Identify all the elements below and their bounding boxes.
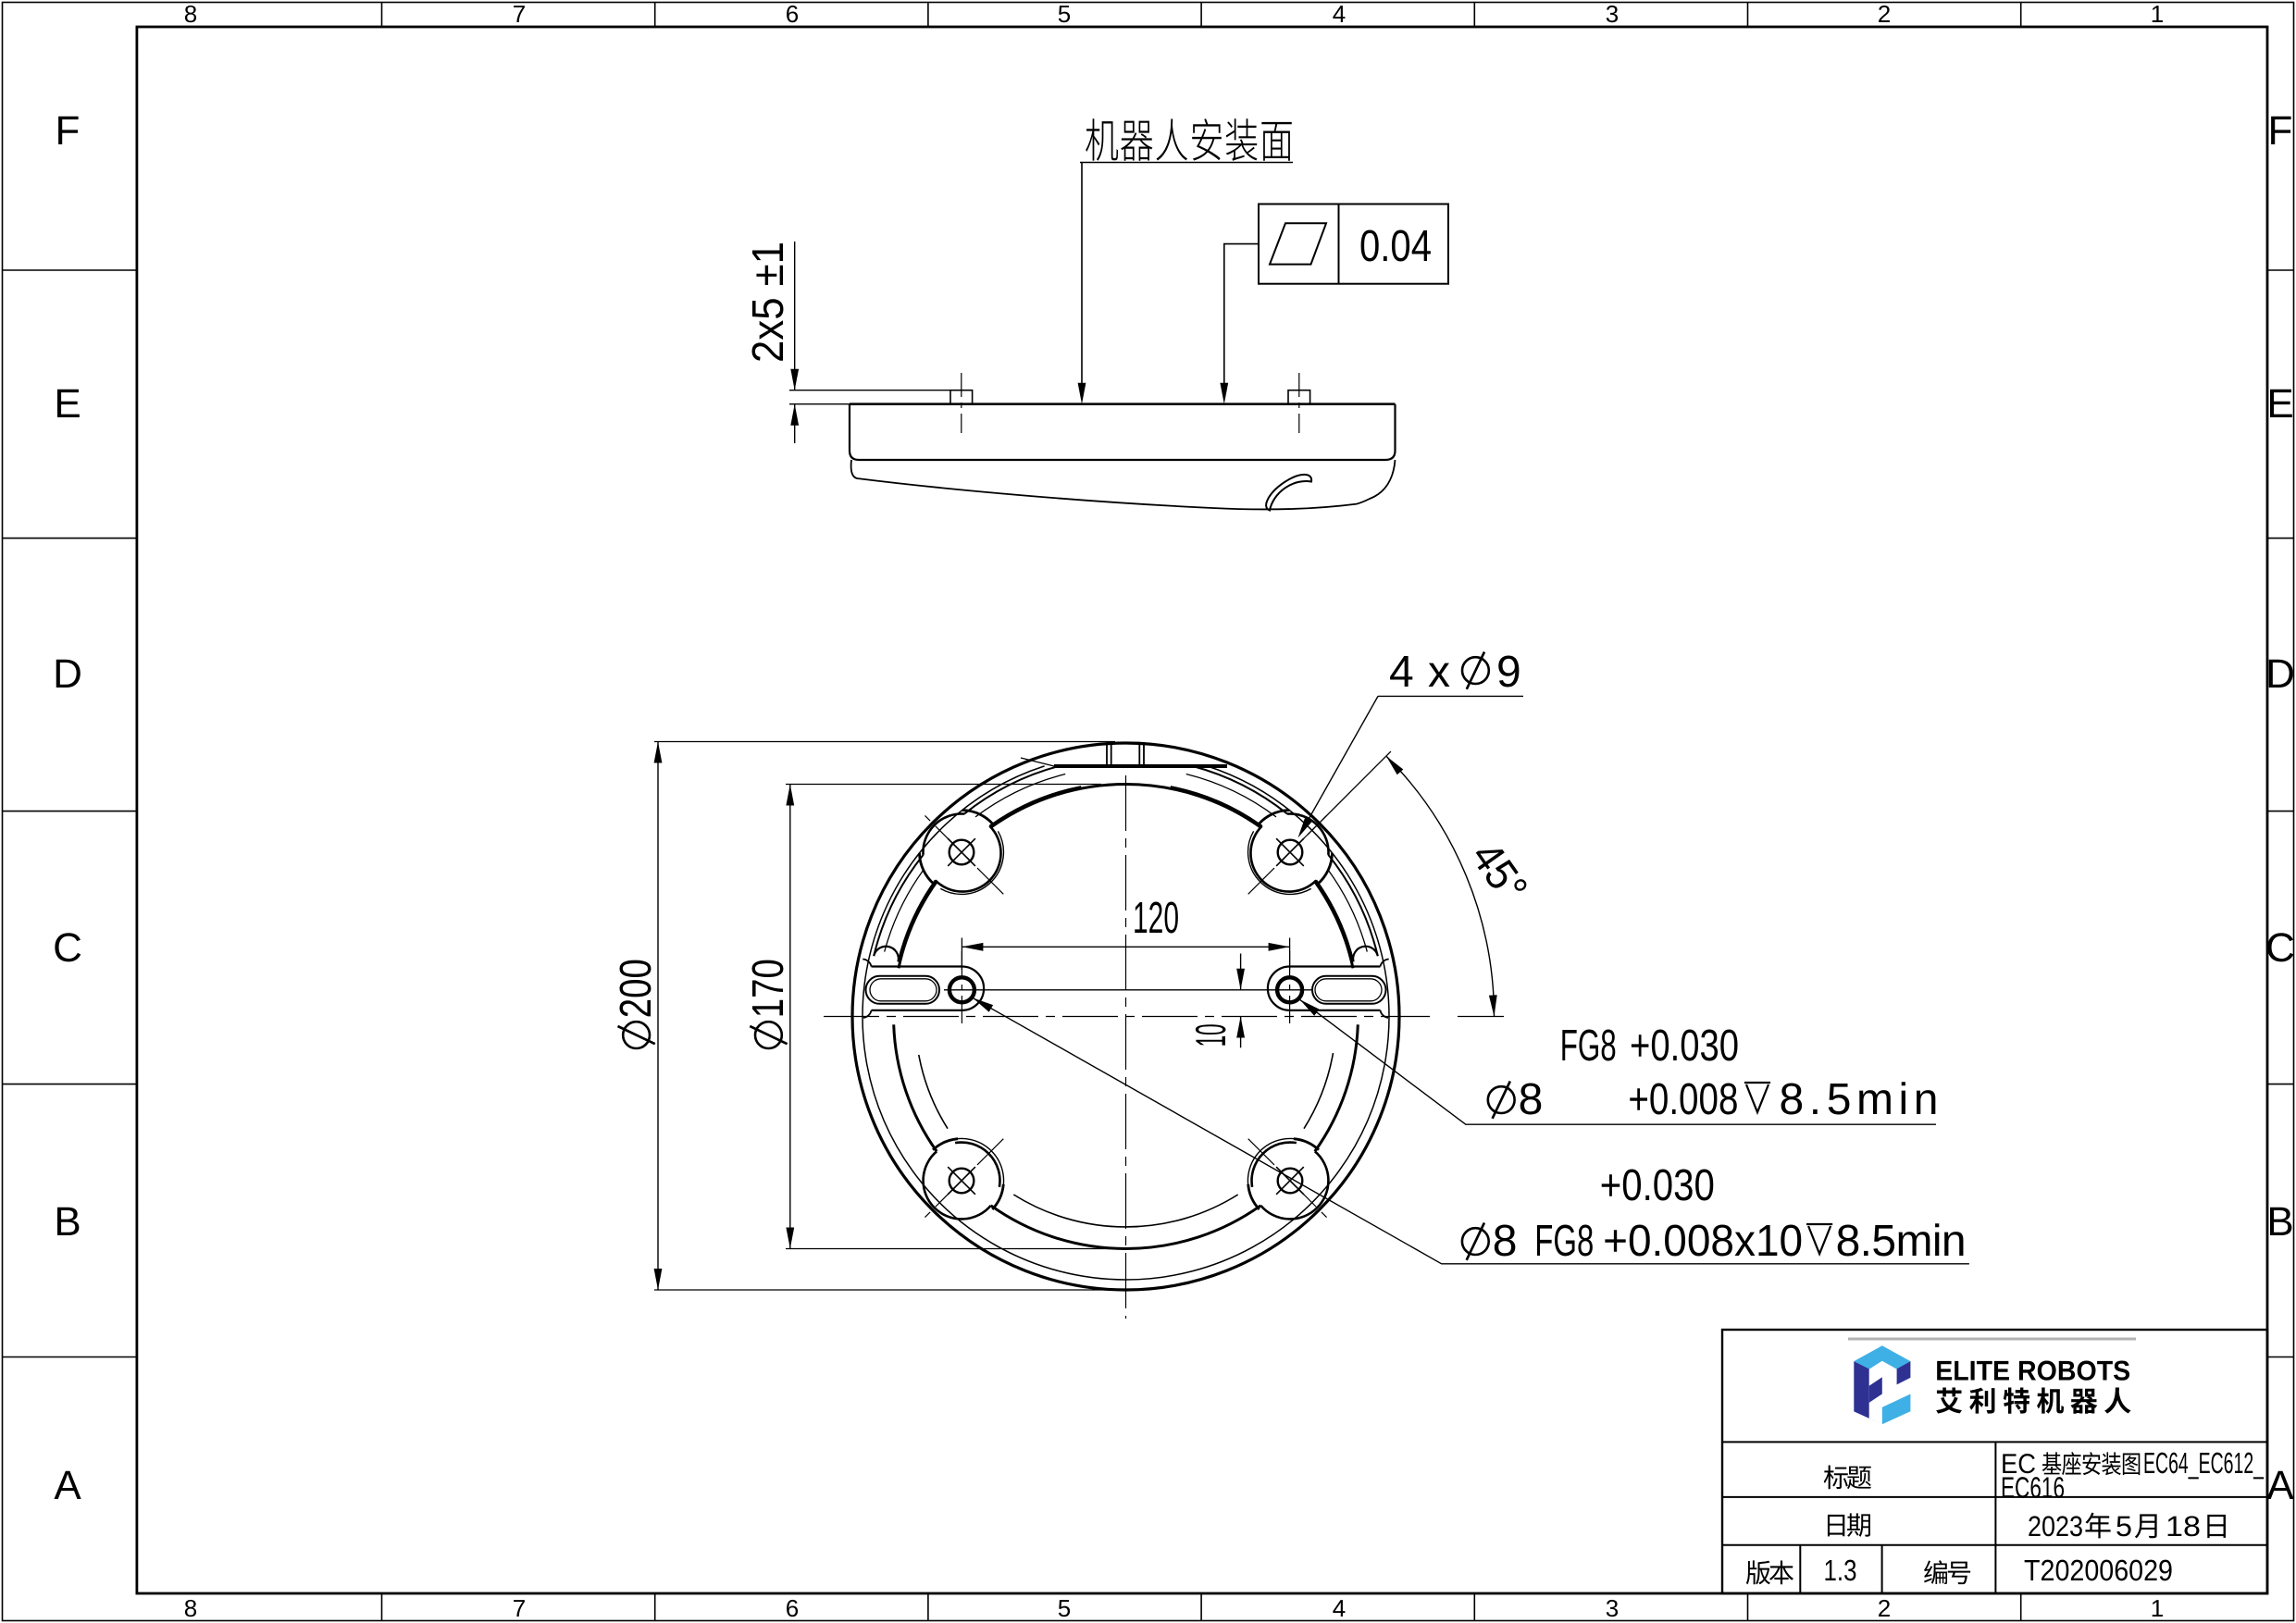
svg-text:+0.008x10: +0.008x10	[1603, 1217, 1803, 1266]
svg-text:6: 6	[786, 0, 799, 28]
svg-text:x: x	[1428, 648, 1450, 697]
svg-text:8.5min: 8.5min	[1836, 1217, 1967, 1266]
svg-text:8: 8	[184, 0, 197, 28]
svg-text:5: 5	[1058, 1594, 1071, 1622]
svg-text:8: 8	[184, 1594, 197, 1622]
svg-text:18: 18	[2166, 1510, 2201, 1542]
svg-text:0.04: 0.04	[1359, 222, 1432, 271]
svg-text:5: 5	[1058, 0, 1071, 28]
svg-text:EC616: EC616	[2001, 1471, 2065, 1505]
svg-text:4: 4	[1333, 0, 1346, 28]
svg-text:6: 6	[786, 1594, 799, 1622]
svg-text:ELITE ROBOTS: ELITE ROBOTS	[1935, 1356, 2130, 1386]
svg-text:T202006029: T202006029	[2024, 1554, 2173, 1587]
svg-text:120: 120	[1133, 894, 1179, 943]
svg-text:8.5min: 8.5min	[1780, 1075, 1939, 1124]
svg-text:4: 4	[1333, 1594, 1346, 1622]
svg-text:9: 9	[1496, 648, 1521, 697]
svg-text:E: E	[2266, 381, 2293, 427]
svg-text:45°: 45°	[1461, 834, 1536, 911]
svg-text:170: 170	[744, 959, 793, 1018]
svg-text:2023: 2023	[2028, 1510, 2083, 1542]
svg-text:1: 1	[2151, 1594, 2164, 1622]
svg-text:D: D	[2265, 651, 2295, 697]
svg-text:4: 4	[1389, 648, 1414, 697]
svg-text:7: 7	[513, 0, 526, 28]
svg-text:200: 200	[612, 959, 661, 1018]
svg-text:8: 8	[1493, 1217, 1518, 1266]
svg-text:1: 1	[2151, 0, 2164, 28]
svg-text:B: B	[2266, 1199, 2293, 1245]
svg-text:2x5 ±1: 2x5 ±1	[744, 242, 793, 363]
svg-text:10: 10	[1186, 1023, 1235, 1047]
svg-text:+0.030: +0.030	[1600, 1161, 1715, 1210]
svg-text:+0.030: +0.030	[1630, 1022, 1739, 1071]
svg-text:E: E	[54, 381, 81, 427]
svg-text:+0.008: +0.008	[1628, 1075, 1738, 1124]
svg-text:1.3: 1.3	[1824, 1554, 1857, 1587]
svg-text:A: A	[2266, 1463, 2294, 1508]
svg-text:5: 5	[2116, 1510, 2132, 1542]
svg-text:2: 2	[1878, 1594, 1891, 1622]
svg-text:F: F	[2268, 108, 2293, 154]
svg-text:7: 7	[513, 1594, 526, 1622]
svg-text:2: 2	[1878, 0, 1891, 28]
svg-text:EC64_EC612_: EC64_EC612_	[2143, 1446, 2265, 1480]
svg-text:3: 3	[1606, 1594, 1619, 1622]
svg-text:F: F	[56, 108, 81, 154]
svg-text:A: A	[54, 1463, 81, 1508]
svg-text:B: B	[54, 1199, 81, 1245]
svg-text:C: C	[2265, 925, 2295, 971]
svg-text:FG8: FG8	[1560, 1022, 1617, 1071]
svg-text:C: C	[53, 925, 82, 971]
svg-text:D: D	[53, 651, 82, 697]
svg-text:3: 3	[1606, 0, 1619, 28]
svg-text:FG8: FG8	[1534, 1217, 1594, 1266]
svg-text:8: 8	[1519, 1075, 1544, 1124]
